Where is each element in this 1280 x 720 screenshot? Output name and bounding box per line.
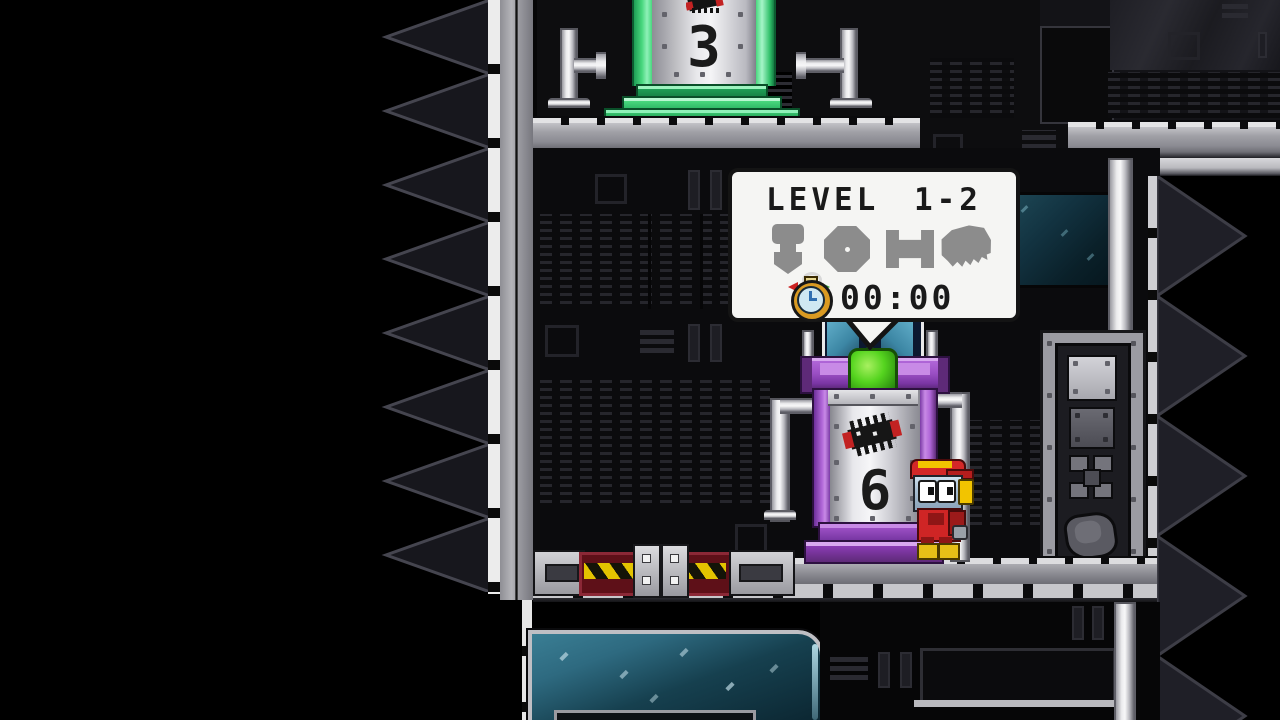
top-right-vent <box>1168 32 1200 60</box>
player-hand <box>952 525 968 540</box>
level-info-bubble: LEVEL 1-2 <box>728 168 1020 322</box>
green-teleporter-pipe-right-foot <box>830 98 872 108</box>
bottom-hbars <box>830 656 868 680</box>
green-teleporter-pipe-left-foot <box>548 98 590 108</box>
bottom-slit-b <box>900 652 912 688</box>
player-boot-right <box>938 543 960 560</box>
room-slit-2a <box>688 324 700 362</box>
purple-pipe-left-arm <box>780 398 812 414</box>
player-ear-device <box>958 479 974 505</box>
gate-plate-right[interactable] <box>661 544 689 598</box>
machine-panel <box>1040 330 1146 581</box>
room-grille-3 <box>620 378 770 508</box>
purple-pipe-left-foot <box>764 510 796 520</box>
player-eye-right <box>937 480 956 503</box>
green-teleporter-body: 3 <box>632 0 776 86</box>
room-hbars-1 <box>640 327 674 353</box>
room-slit-1a <box>688 170 700 210</box>
bottom-slit-a <box>878 652 890 688</box>
green-teleporter-pipe-right-arm <box>800 58 844 73</box>
level-title: LEVEL 1-2 <box>732 182 1016 218</box>
stopwatch-icon <box>788 272 830 316</box>
room-slit-1b <box>710 170 722 210</box>
top-right-grille <box>1108 72 1280 118</box>
tube-inner-hatch <box>554 710 756 720</box>
panel-plate-dark[interactable] <box>1069 407 1115 449</box>
green-teleporter-number: 3 <box>634 20 774 76</box>
bottom-slit-c <box>1072 606 1084 640</box>
player-eye-left <box>918 480 937 503</box>
chip-silhouette-icon <box>940 224 992 274</box>
bottom-silver-ledge <box>914 700 1114 707</box>
chip-icon <box>686 0 726 13</box>
collectible-slots <box>768 224 988 274</box>
room-vent-1 <box>595 174 627 204</box>
gate-plate-left[interactable] <box>633 544 661 598</box>
glass-tube <box>528 630 824 720</box>
top-right-slit <box>1258 32 1267 58</box>
panel-plate-light[interactable] <box>1067 355 1117 401</box>
game-screen: 3 <box>0 0 1280 720</box>
gear-silhouette-icon <box>824 226 870 272</box>
gate-bracket-left <box>533 550 585 596</box>
top-right-dark-panel <box>1040 26 1114 124</box>
bottom-panel-outline <box>920 648 1116 706</box>
room-grille-1 <box>540 214 740 309</box>
shaft-grille <box>930 58 1014 118</box>
left-wall-pillar <box>500 0 533 600</box>
timer-row: 00:00 <box>788 272 988 316</box>
green-teleporter[interactable]: 3 <box>600 0 800 123</box>
medal-silhouette-icon <box>768 224 808 274</box>
bottom-slit-d <box>1092 606 1104 640</box>
player-cap-stripe <box>918 461 952 468</box>
left-light-strip <box>488 0 500 594</box>
bottom-right-pipe <box>1114 602 1136 720</box>
hazard-gate <box>533 544 793 596</box>
spool-silhouette-icon <box>886 230 934 268</box>
player-boot-left <box>917 543 939 560</box>
right-spike-wall <box>1157 176 1257 720</box>
player-robot <box>906 455 972 558</box>
room-seam-2 <box>700 214 703 309</box>
panel-cross-device[interactable] <box>1067 455 1113 499</box>
room-seam-1 <box>648 214 651 309</box>
level-time: 00:00 <box>840 278 954 317</box>
top-right-hbars <box>1222 2 1248 18</box>
ceiling-beam-left <box>533 116 920 148</box>
teal-window <box>1012 192 1118 288</box>
room-slit-2b <box>710 324 722 362</box>
panel-boulder[interactable] <box>1065 509 1115 555</box>
left-spike-wall <box>376 0 490 592</box>
room-vent-2 <box>545 325 579 357</box>
purple-pipe-left <box>770 398 790 522</box>
top-room-seam <box>533 0 537 118</box>
player-chest <box>928 513 944 525</box>
